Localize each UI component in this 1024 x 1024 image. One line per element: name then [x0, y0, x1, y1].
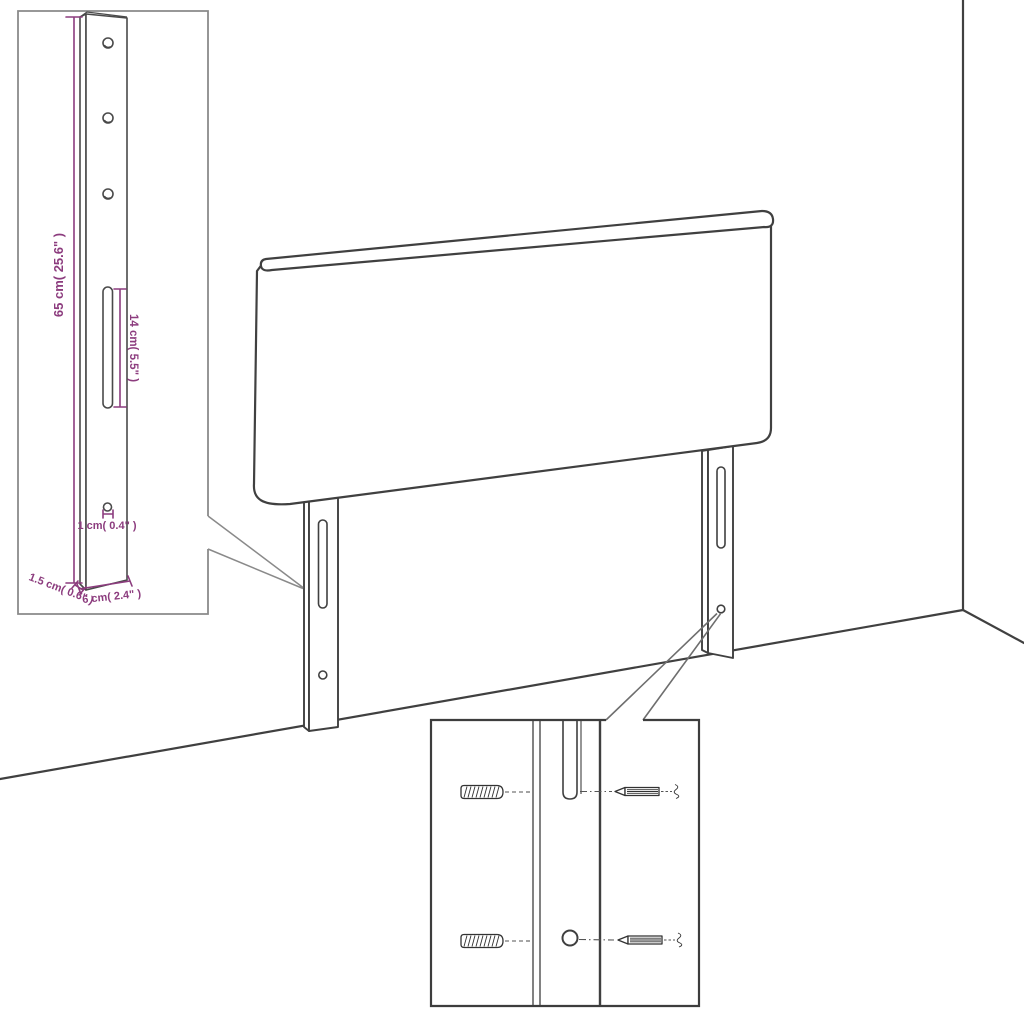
mounting-slot — [563, 721, 577, 799]
inset-mounting-border — [431, 720, 699, 1006]
screw-bottom — [618, 933, 682, 947]
wall-plug-bottom — [461, 935, 524, 948]
right-leg-slot — [717, 467, 725, 548]
dim-width-label: 6 cm( 2.4" ) — [82, 588, 142, 606]
screw-top — [615, 785, 679, 799]
bracket-small-hole — [104, 503, 112, 511]
left-leg — [304, 497, 338, 731]
right-leg-hole — [717, 605, 725, 613]
left-leg-slot — [319, 520, 328, 608]
right-leg — [702, 446, 733, 658]
headboard — [254, 211, 773, 731]
floor-line-left — [0, 610, 963, 779]
mounting-leg-strip — [533, 721, 600, 1005]
bracket-hole-1 — [103, 38, 113, 48]
left-leg-hole — [319, 671, 327, 679]
floor-line-right — [963, 610, 1024, 643]
headboard-dimension-diagram: 65 cm( 25.6" ) 14 cm( 5.5" ) 1 cm( 0.4" … — [0, 0, 1024, 1024]
dim-hole-label: 1 cm( 0.4" ) — [77, 520, 136, 532]
detail-inset-mounting — [431, 614, 721, 1007]
dim-slot-label: 14 cm( 5.5" ) — [127, 314, 139, 382]
bracket-side-face — [80, 14, 86, 590]
bracket-hole-3 — [103, 189, 113, 199]
screw-bottom-leader — [579, 940, 614, 941]
diagram-canvas: 65 cm( 25.6" ) 14 cm( 5.5" ) 1 cm( 0.4" … — [0, 0, 1024, 1024]
mounting-hole — [563, 931, 578, 946]
wall-plug-top — [461, 786, 524, 799]
dimension-height: 65 cm( 25.6" ) — [51, 17, 82, 583]
inset-bracket-callout-lines — [208, 516, 303, 589]
bracket-slot — [103, 287, 113, 408]
bracket-hole-2 — [103, 113, 113, 123]
dim-height-label: 65 cm( 25.6" ) — [51, 233, 66, 317]
